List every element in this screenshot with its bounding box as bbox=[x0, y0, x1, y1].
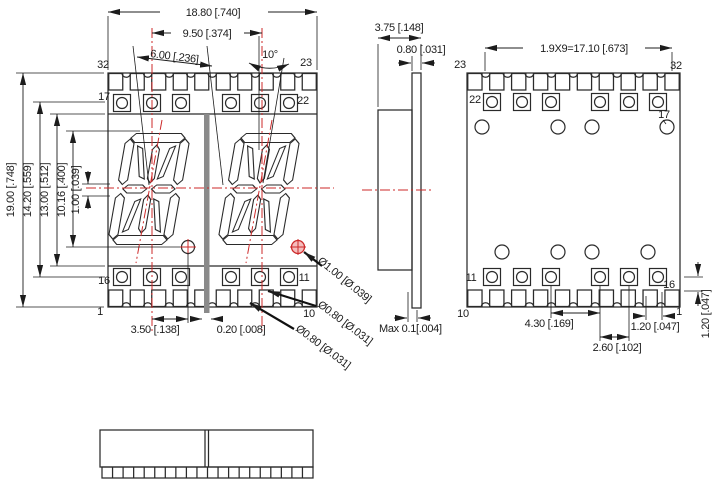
dim-face-height: 13.00 [.512] bbox=[39, 163, 51, 218]
left-digit bbox=[107, 134, 191, 245]
side-view: 3.75 [.148] 0.80 [.031] Max 0.1[.004] bbox=[362, 22, 446, 335]
dim-pad-edge-vertical: 1.20 [.047] bbox=[700, 289, 712, 338]
pin-label: 11 bbox=[299, 272, 310, 284]
pin-label: 10 bbox=[457, 308, 469, 320]
dim-depth: 3.75 [.148] bbox=[375, 22, 424, 34]
dim-mid-gap: 1.00 [.039] bbox=[70, 165, 82, 214]
center-gap-divider bbox=[204, 114, 210, 313]
pin-label: 16 bbox=[663, 279, 675, 291]
dim-dp-offset: 3.50 [.138] bbox=[131, 324, 180, 336]
led-display-drawing: 32 23 17 22 16 11 1 10 18.80 [.740] 9.50… bbox=[0, 0, 720, 485]
pin-label: 17 bbox=[658, 109, 670, 121]
dim-pcb-thickness: 0.80 [.031] bbox=[397, 44, 446, 56]
pin-label: 23 bbox=[300, 57, 312, 69]
dim-pad-pitch: 1.9X9=17.10 [.673] bbox=[540, 43, 628, 55]
pin-label: 32 bbox=[97, 59, 109, 71]
terminal-strip bbox=[102, 467, 313, 478]
pin-label: 11 bbox=[466, 272, 477, 284]
dim-notch-diameter: Ø0.80 [Ø.031] bbox=[293, 323, 352, 372]
dim-via-span: 4.30 [.169] bbox=[525, 318, 574, 330]
front-dimensions: 18.80 [.740] 9.50 [.374] 6.00 [.236] 10°… bbox=[5, 7, 375, 372]
pin-label: 22 bbox=[469, 94, 481, 106]
pin-label: 1 bbox=[97, 306, 103, 318]
dim-pad-span: 14.20 [.559] bbox=[22, 163, 34, 218]
decimal-point-left bbox=[180, 239, 196, 255]
dim-pad-edge: 1.20 [.047] bbox=[631, 321, 680, 333]
pin-label: 1 bbox=[676, 306, 682, 318]
centerline-slant-left bbox=[136, 120, 162, 263]
pin-label: 22 bbox=[297, 95, 309, 107]
dim-slant-angle: 10° bbox=[262, 49, 278, 61]
dim-digit-pitch: 9.50 [.374] bbox=[183, 28, 232, 40]
pin-label: 23 bbox=[454, 59, 466, 71]
pin-label: 10 bbox=[303, 308, 315, 320]
dim-flatness: Max 0.1[.004] bbox=[379, 323, 442, 335]
back-view: 23 32 22 17 11 16 10 1 1.9X9=17.10 [.673… bbox=[454, 43, 712, 354]
bottom-profile-view bbox=[100, 430, 313, 478]
dim-total-width: 18.80 [.740] bbox=[186, 7, 241, 19]
dim-char-width: 6.00 [.236] bbox=[149, 48, 199, 66]
right-digit bbox=[217, 134, 301, 245]
dim-total-height: 19.00 [.748] bbox=[5, 163, 17, 218]
pin-label: 17 bbox=[98, 91, 110, 103]
dim-center-gap: 0.20 [.008] bbox=[217, 324, 266, 336]
dim-char-height: 10.16 [.400] bbox=[56, 163, 68, 218]
mechanical-drawing-canvas: 32 23 17 22 16 11 1 10 18.80 [.740] 9.50… bbox=[0, 0, 720, 485]
dim-via-offset: 2.60 [.102] bbox=[593, 342, 642, 354]
dim-dp-diameter: Ø1.00 [Ø.039] bbox=[315, 255, 373, 306]
